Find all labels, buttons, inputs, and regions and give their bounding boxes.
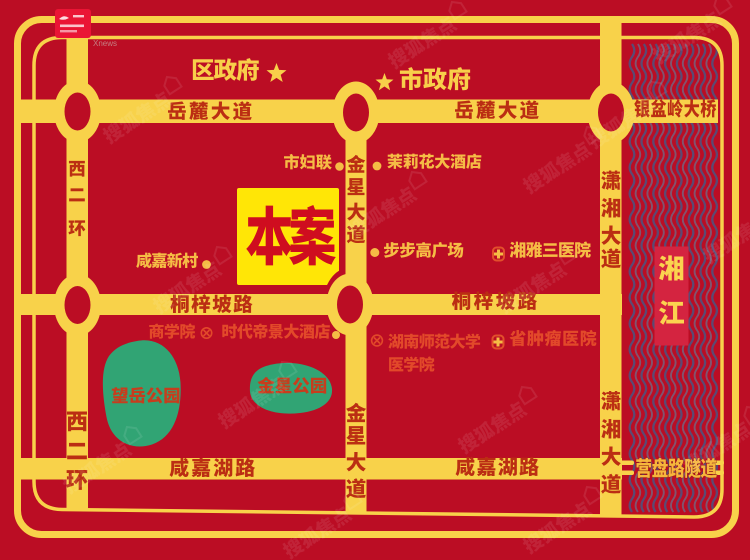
svg-text:Xnews: Xnews xyxy=(93,39,117,48)
